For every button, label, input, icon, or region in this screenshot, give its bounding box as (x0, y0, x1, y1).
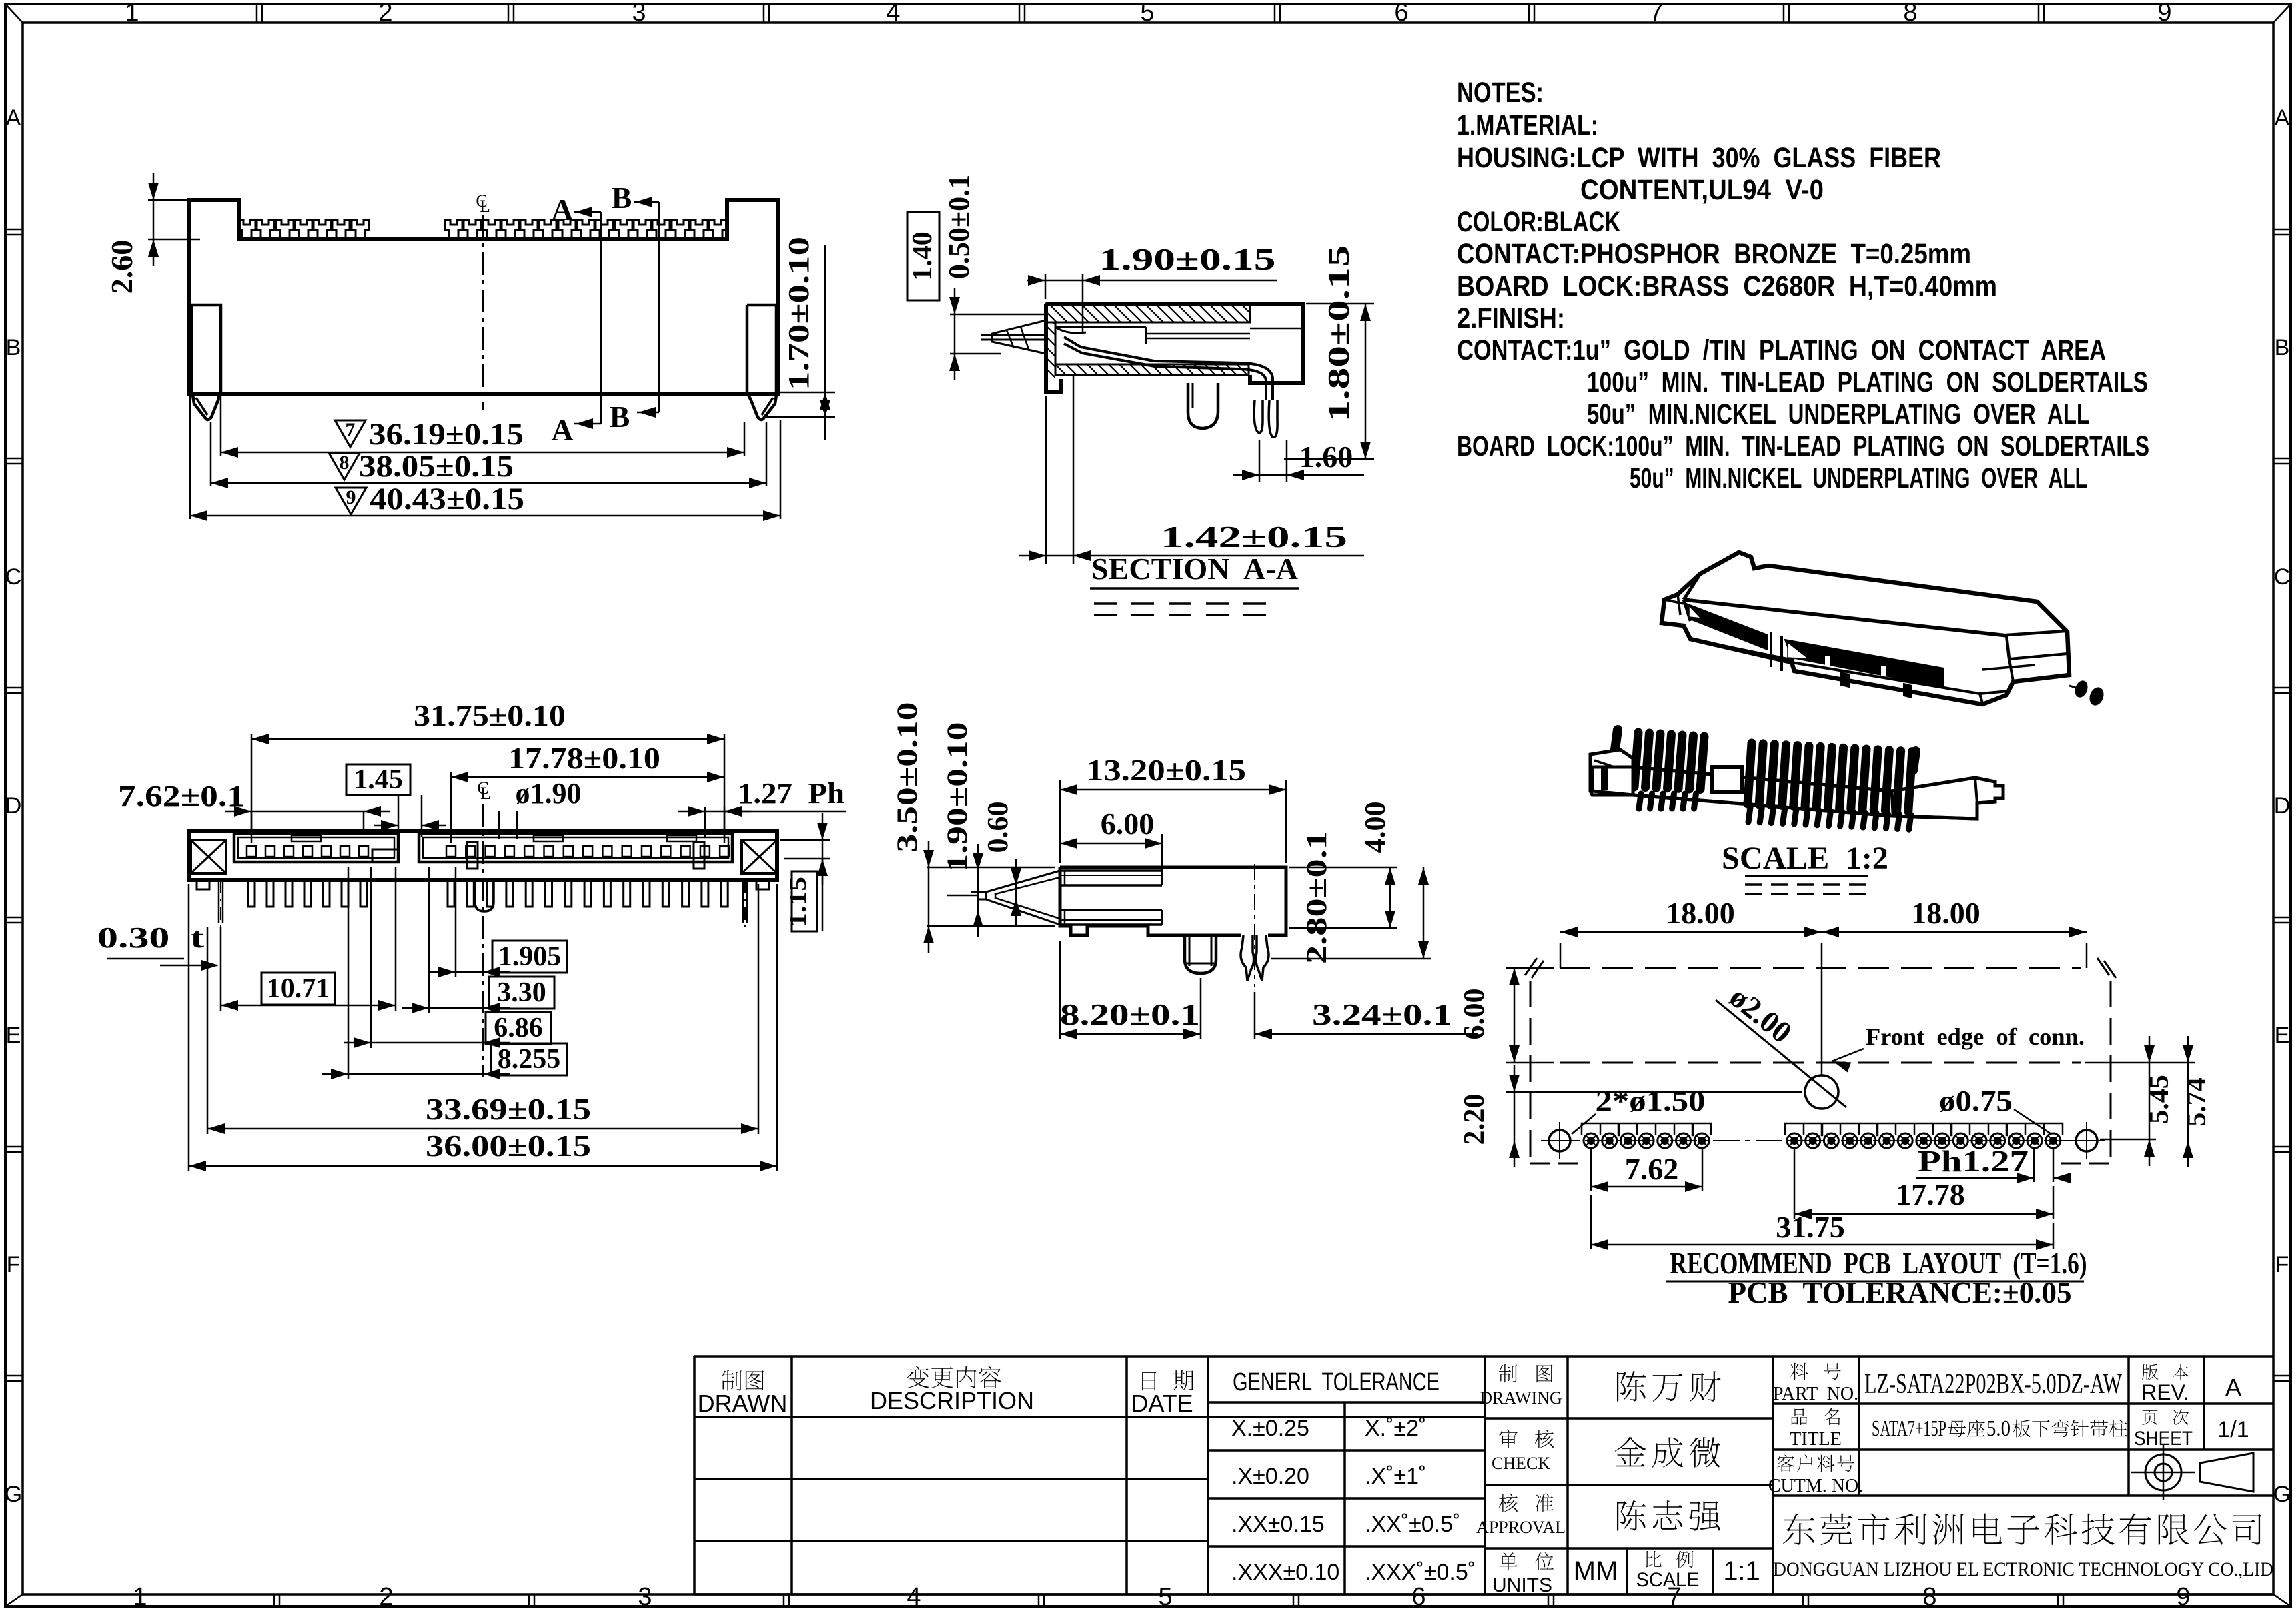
svg-text:.XX±0.15: .XX±0.15 (1231, 1512, 1325, 1537)
svg-text:2*ø1.50: 2*ø1.50 (1596, 1085, 1706, 1117)
svg-text:5: 5 (1140, 0, 1154, 27)
svg-text:B: B (6, 335, 21, 360)
svg-text:G: G (5, 1482, 22, 1507)
svg-text:3: 3 (632, 0, 646, 27)
svg-text:DRAWN: DRAWN (698, 1390, 788, 1417)
svg-text:1: 1 (125, 0, 139, 27)
svg-text:ø0.75: ø0.75 (1939, 1085, 2013, 1117)
svg-text:BOARD LOCK:BRASS C2680R H,T: BOARD LOCK:BRASS C2680R H,T=0.40mm (1457, 270, 1997, 302)
svg-text:.X˚±1˚: .X˚±1˚ (1365, 1464, 1426, 1489)
svg-text:1.80±0.15: 1.80±0.15 (1322, 245, 1355, 422)
svg-text:F: F (7, 1252, 21, 1277)
svg-text:C: C (5, 564, 22, 590)
svg-text:NOTES:: NOTES: (1457, 77, 1544, 109)
svg-text:E: E (6, 1023, 21, 1048)
svg-text:.X±0.20: .X±0.20 (1231, 1464, 1309, 1489)
svg-text:CUTM. NO.: CUTM. NO. (1768, 1476, 1863, 1496)
svg-text:33.69±0.15: 33.69±0.15 (426, 1093, 591, 1126)
svg-text:PCB TOLERANCE:±0.05: PCB TOLERANCE:±0.05 (1728, 1276, 2072, 1309)
svg-text:X.±0.25: X.±0.25 (1231, 1416, 1309, 1441)
svg-text:B: B (610, 400, 630, 434)
svg-text:7: 7 (1649, 0, 1663, 27)
svg-text:CONTACT:1u” GOLD /TIN PLATI: CONTACT:1u” GOLD /TIN PLATING ON CONTACT… (1457, 334, 2106, 366)
svg-text:2.20: 2.20 (1458, 1094, 1490, 1145)
svg-text:1.70±0.10: 1.70±0.10 (782, 237, 815, 390)
svg-text:9: 9 (2176, 1583, 2190, 1611)
svg-text:B: B (612, 181, 632, 215)
svg-text:DONGGUAN LIZHOU EL ECTRONIC TE: DONGGUAN LIZHOU EL ECTRONIC TECHNOLOGY C… (1773, 1558, 2273, 1580)
svg-text:Ph1.27: Ph1.27 (1918, 1144, 2029, 1178)
svg-text:50u” MIN.NICKEL UNDERPLATING: 50u” MIN.NICKEL UNDERPLATING OVER ALL (1630, 462, 2087, 494)
svg-text:7: 7 (346, 419, 356, 441)
svg-text:8: 8 (340, 452, 350, 474)
svg-text:1.27 Ph: 1.27 Ph (738, 777, 844, 810)
svg-text:E: E (2275, 1023, 2290, 1048)
svg-text:.XXX˚±0.5˚: .XXX˚±0.5˚ (1365, 1560, 1476, 1585)
svg-text:1.90±0.10: 1.90±0.10 (942, 722, 973, 873)
svg-text:7.62±0.1: 7.62±0.1 (118, 780, 245, 813)
svg-text:1.MATERIAL:: 1.MATERIAL: (1457, 109, 1598, 141)
svg-text:RECOMMEND PCB LAYOUT (T=1.6: RECOMMEND PCB LAYOUT (T=1.6) (1670, 1247, 2087, 1280)
svg-text:4: 4 (886, 0, 900, 27)
svg-text:17.78±0.10: 17.78±0.10 (508, 742, 660, 775)
svg-text:SCALE: SCALE (1636, 1569, 1700, 1591)
svg-text:3.24±0.1: 3.24±0.1 (1312, 997, 1452, 1031)
svg-text:A: A (2275, 105, 2290, 131)
svg-text:CONTENT,UL94 V-0: CONTENT,UL94 V-0 (1580, 174, 1824, 206)
svg-text:A: A (551, 193, 573, 227)
svg-text:1.90±0.15: 1.90±0.15 (1099, 243, 1276, 276)
svg-text:38.05±0.15: 38.05±0.15 (359, 449, 514, 484)
svg-text:31.75: 31.75 (1776, 1210, 1845, 1244)
svg-text:7.62: 7.62 (1625, 1152, 1679, 1186)
svg-text:G: G (2273, 1482, 2291, 1507)
svg-text:DATE: DATE (1131, 1390, 1193, 1417)
svg-text:5.0: 5.0 (1986, 1416, 2011, 1441)
svg-text:5.45: 5.45 (2144, 1075, 2175, 1124)
svg-text:6.00: 6.00 (1101, 807, 1155, 841)
svg-text:.XX˚±0.5˚: .XX˚±0.5˚ (1365, 1512, 1460, 1537)
svg-text:36.00±0.15: 36.00±0.15 (426, 1129, 591, 1163)
svg-text:LZ-SATA22P02BX-5.0DZ-AW: LZ-SATA22P02BX-5.0DZ-AW (1864, 1369, 2122, 1400)
svg-text:8: 8 (1903, 0, 1917, 27)
svg-text:8.255: 8.255 (498, 1044, 561, 1075)
svg-text:13.20±0.15: 13.20±0.15 (1086, 754, 1246, 787)
svg-text:2: 2 (378, 0, 392, 27)
svg-text:1.42±0.15: 1.42±0.15 (1161, 520, 1347, 554)
svg-text:100u” MIN. TIN-LEAD PLATING: 100u” MIN. TIN-LEAD PLATING ON SOLDERTAI… (1587, 366, 2148, 398)
svg-text:0.50±0.1: 0.50±0.1 (943, 175, 975, 279)
svg-text:0.60: 0.60 (981, 802, 1014, 853)
svg-text:2.60: 2.60 (105, 240, 139, 294)
svg-text:SCALE 1:2: SCALE 1:2 (1722, 841, 1888, 876)
svg-text:D: D (5, 793, 22, 819)
svg-text:A: A (2225, 1374, 2241, 1401)
svg-text:DESCRIPTION: DESCRIPTION (870, 1387, 1034, 1414)
svg-text:4.00: 4.00 (1359, 802, 1391, 853)
svg-text:B: B (2275, 335, 2290, 360)
svg-text:L: L (480, 197, 490, 216)
svg-text:2: 2 (379, 1583, 393, 1611)
svg-text:40.43±0.15: 40.43±0.15 (370, 482, 524, 516)
svg-text:8.20±0.1: 8.20±0.1 (1060, 997, 1200, 1031)
svg-text:6.86: 6.86 (494, 1013, 543, 1043)
svg-text:9: 9 (2157, 0, 2171, 27)
svg-text:HOUSING:LCP WITH 30% GLASS: HOUSING:LCP WITH 30% GLASS FIBER (1457, 142, 1941, 174)
svg-text:18.00: 18.00 (1911, 896, 1980, 930)
svg-text:1: 1 (133, 1583, 147, 1611)
svg-text:6.00: 6.00 (1458, 989, 1490, 1040)
svg-text:.XXX±0.10: .XXX±0.10 (1231, 1560, 1339, 1585)
svg-text:1:1: 1:1 (1723, 1556, 1760, 1586)
svg-text:17.78: 17.78 (1896, 1177, 1965, 1211)
svg-text:SECTION A-A: SECTION A-A (1091, 552, 1298, 586)
svg-text:BOARD LOCK:100u” MIN. TIN-L: BOARD LOCK:100u” MIN. TIN-LEAD PLATING O… (1457, 430, 2149, 462)
svg-text:REV.: REV. (2141, 1380, 2189, 1404)
svg-text:2.80±0.1: 2.80±0.1 (1301, 831, 1333, 964)
svg-text:A: A (6, 105, 21, 131)
svg-text:DRAWING: DRAWING (1480, 1388, 1562, 1408)
svg-text:6: 6 (1394, 0, 1408, 27)
svg-text:5.74: 5.74 (2181, 1077, 2212, 1127)
svg-text:X.˚±2˚: X.˚±2˚ (1365, 1416, 1426, 1441)
svg-text:18.00: 18.00 (1666, 896, 1735, 930)
svg-text:C: C (2274, 564, 2291, 590)
svg-text:CONTACT:PHOSPHOR BRONZE T=0.: CONTACT:PHOSPHOR BRONZE T=0.25mm (1457, 238, 1971, 270)
svg-text:APPROVAL: APPROVAL (1476, 1518, 1566, 1537)
svg-text:1.45: 1.45 (354, 764, 403, 795)
svg-text:3: 3 (638, 1583, 652, 1611)
svg-text:4: 4 (907, 1583, 921, 1611)
svg-text:1/1: 1/1 (2217, 1417, 2249, 1442)
svg-text:31.75±0.10: 31.75±0.10 (414, 699, 566, 732)
svg-text:36.19±0.15: 36.19±0.15 (369, 417, 524, 452)
svg-text:UNITS: UNITS (1492, 1574, 1552, 1596)
svg-text:3.50±0.10: 3.50±0.10 (892, 702, 923, 853)
svg-text:F: F (2275, 1252, 2289, 1277)
svg-text:5: 5 (1158, 1583, 1172, 1611)
svg-text:Front edge of conn.: Front edge of conn. (1866, 1023, 2085, 1050)
svg-text:6: 6 (1411, 1583, 1425, 1611)
svg-text:L: L (480, 784, 491, 803)
svg-text:GENERL TOLERANCE: GENERL TOLERANCE (1233, 1368, 1440, 1396)
svg-text:10.71: 10.71 (267, 973, 330, 1004)
svg-text:TITLE: TITLE (1790, 1429, 1842, 1450)
svg-text:PART NO.: PART NO. (1773, 1384, 1858, 1404)
svg-text:8: 8 (1922, 1583, 1936, 1611)
svg-text:ø1.90: ø1.90 (516, 777, 582, 810)
svg-text:50u” MIN.NICKEL UNDERPLATING: 50u” MIN.NICKEL UNDERPLATING OVER ALL (1587, 398, 2090, 430)
svg-text:D: D (2274, 793, 2291, 819)
svg-text:SATA7+15P: SATA7+15P (1872, 1416, 1946, 1441)
svg-text:1.40: 1.40 (907, 231, 938, 281)
svg-text:1.15: 1.15 (784, 877, 811, 927)
svg-text:CHECK: CHECK (1492, 1454, 1550, 1473)
svg-text:COLOR:BLACK: COLOR:BLACK (1457, 206, 1620, 238)
svg-text:2.FINISH:: 2.FINISH: (1457, 302, 1565, 334)
svg-text:A: A (551, 413, 573, 447)
svg-text:1.60: 1.60 (1299, 440, 1353, 474)
svg-text:1.905: 1.905 (498, 941, 562, 972)
svg-text:9: 9 (346, 486, 356, 508)
svg-text:MM: MM (1574, 1556, 1618, 1586)
svg-text:3.30: 3.30 (497, 977, 546, 1008)
